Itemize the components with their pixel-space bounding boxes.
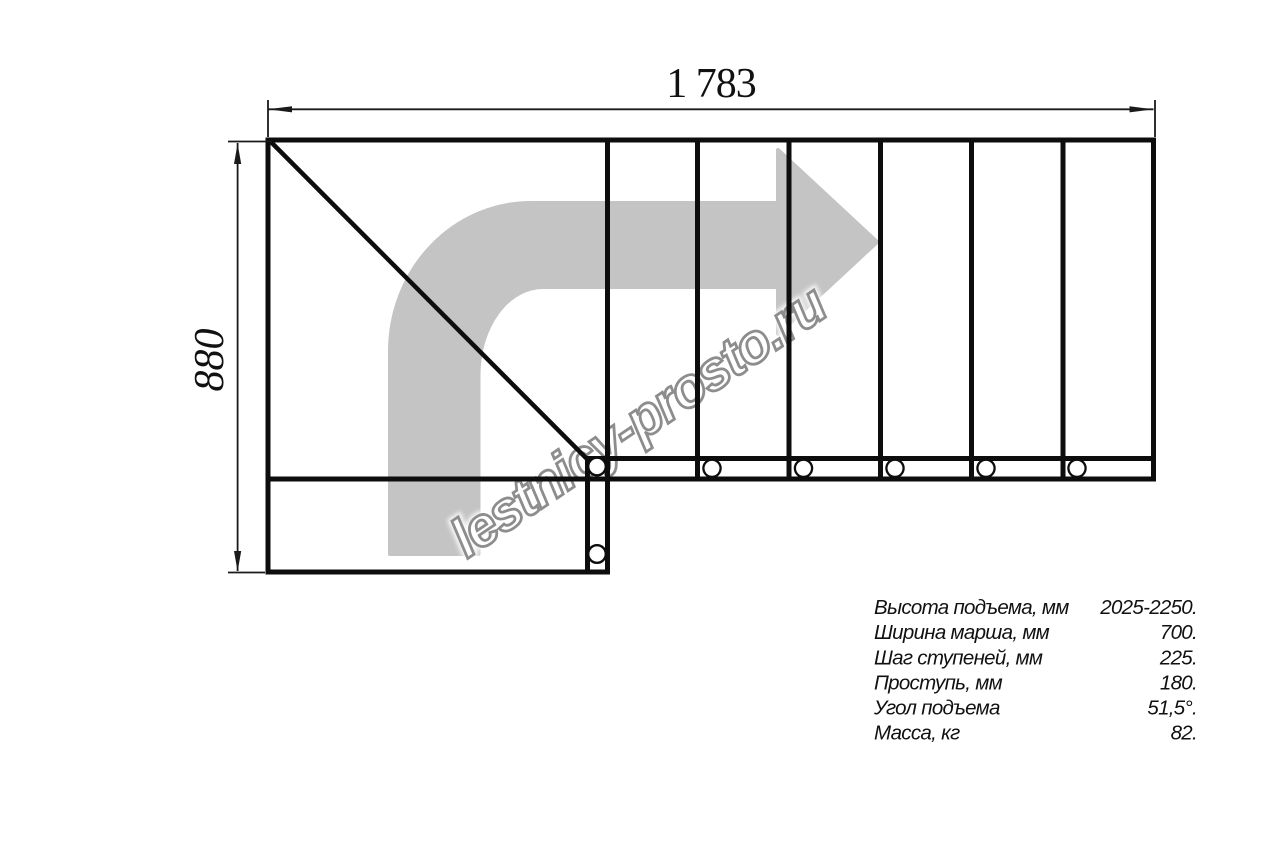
svg-text:Масса, кг: Масса, кг	[874, 722, 960, 745]
svg-text:82.: 82.	[1171, 722, 1197, 745]
svg-text:180.: 180.	[1160, 672, 1197, 695]
svg-text:2025-2250.: 2025-2250.	[1099, 596, 1197, 619]
svg-text:Ширина марша, мм: Ширина марша, мм	[874, 621, 1050, 644]
svg-text:700.: 700.	[1160, 621, 1197, 644]
svg-text:Шаг ступеней, мм: Шаг ступеней, мм	[874, 647, 1043, 670]
svg-text:225.: 225.	[1159, 647, 1197, 670]
svg-text:880: 880	[187, 329, 233, 392]
svg-text:51,5°.: 51,5°.	[1147, 697, 1197, 720]
svg-text:Проступь, мм: Проступь, мм	[874, 672, 1003, 695]
svg-text:Угол подъема: Угол подъема	[873, 697, 1000, 720]
svg-text:1 783: 1 783	[666, 61, 756, 107]
svg-text:Высота подъема, мм: Высота подъема, мм	[874, 596, 1069, 619]
